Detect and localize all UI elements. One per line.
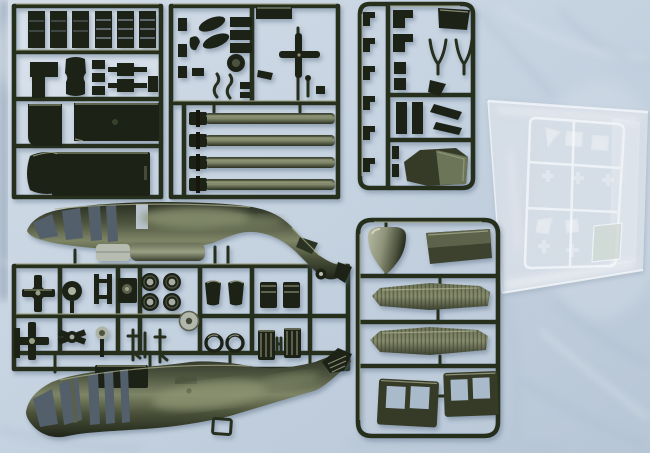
kit-photo: Light blue wrinkled fabric background Sp…: [0, 0, 650, 453]
console-part: [65, 57, 86, 96]
tail-wheel: [316, 269, 327, 280]
swashplate-part: [180, 312, 199, 331]
flat-panel-part: [426, 229, 492, 264]
clear-windscreen-part: [592, 223, 622, 262]
engine-underparts: [96, 243, 205, 261]
gearbox-part: [118, 278, 137, 303]
cabin-floor-part: [27, 152, 150, 196]
stabilator-part: [370, 327, 488, 355]
cabin-door-part: [443, 371, 499, 417]
clear-bag: Bagged clear sprue with cockpit and cabi…: [488, 101, 648, 293]
cabin-door-part: [377, 378, 439, 427]
large-panel-parts: [28, 103, 159, 146]
stabilator-part: [372, 283, 490, 310]
